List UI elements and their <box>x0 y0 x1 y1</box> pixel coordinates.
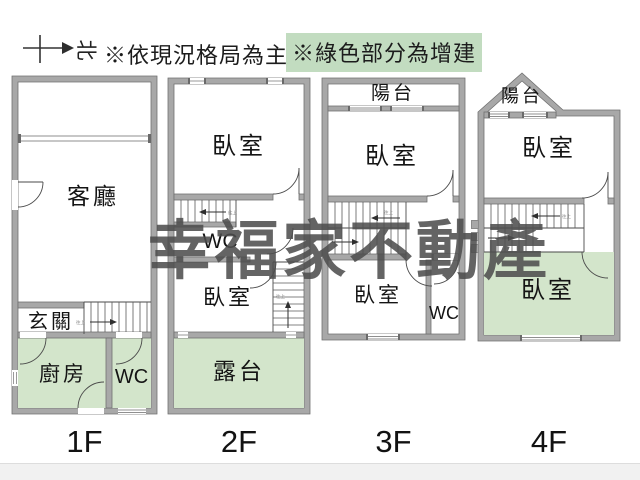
room-label-balcony-4f: 陽台 <box>486 87 558 107</box>
note-green-addition: ※綠色部分為增建 <box>286 33 482 72</box>
room-label-wc-1f: WC <box>112 366 151 388</box>
note-current-layout: ※依現況格局為主 <box>104 38 288 70</box>
room-label-wc-3f: WC <box>427 304 461 324</box>
stair-note-text: 往上 <box>276 293 285 299</box>
footer-strip <box>0 463 640 480</box>
room-label-living-room: 客廳 <box>48 184 138 209</box>
compass-north-indicator: 北 <box>20 33 104 69</box>
room-label-bedroom-3f-upper: 臥室 <box>347 144 437 170</box>
stair-note-text: 往上 <box>562 213 571 219</box>
room-label-bedroom-4f-upper: 臥室 <box>504 136 594 162</box>
room-label-bedroom-2f-upper: 臥室 <box>194 134 284 160</box>
floor-plan-1f: 往上 客廳 玄關 廚房 WC <box>12 76 157 414</box>
room-label-kitchen: 廚房 <box>24 363 102 386</box>
stairs <box>84 302 151 334</box>
floor-plan-3f: 往上 陽台 臥室 臥室 WC <box>322 78 465 340</box>
room-label-entry: 玄關 <box>20 311 82 333</box>
floor-label-4f: 4F <box>478 424 620 460</box>
compass-cross-icon <box>23 35 74 63</box>
room-label-terrace-2f: 露台 <box>194 359 284 384</box>
stair-direction-arrow: 往上 <box>76 319 117 325</box>
floor-label-1f: 1F <box>12 424 157 460</box>
floor-plan-4f: 往上 陽台 臥室 臥室 <box>478 60 620 341</box>
floor-label-2f: 2F <box>168 424 310 460</box>
floor-plan-canvas: 北 ※依現況格局為主 ※綠色部分為增建 <box>0 0 640 480</box>
floor-label-3f: 3F <box>322 424 465 460</box>
north-arrow-icon <box>62 42 74 54</box>
room-label-balcony-3f: 陽台 <box>348 84 438 105</box>
north-label: 北 <box>74 40 98 61</box>
room-label-bedroom-2f-lower: 臥室 <box>183 286 273 310</box>
watermark-text: 幸福家不動產 <box>148 220 552 284</box>
